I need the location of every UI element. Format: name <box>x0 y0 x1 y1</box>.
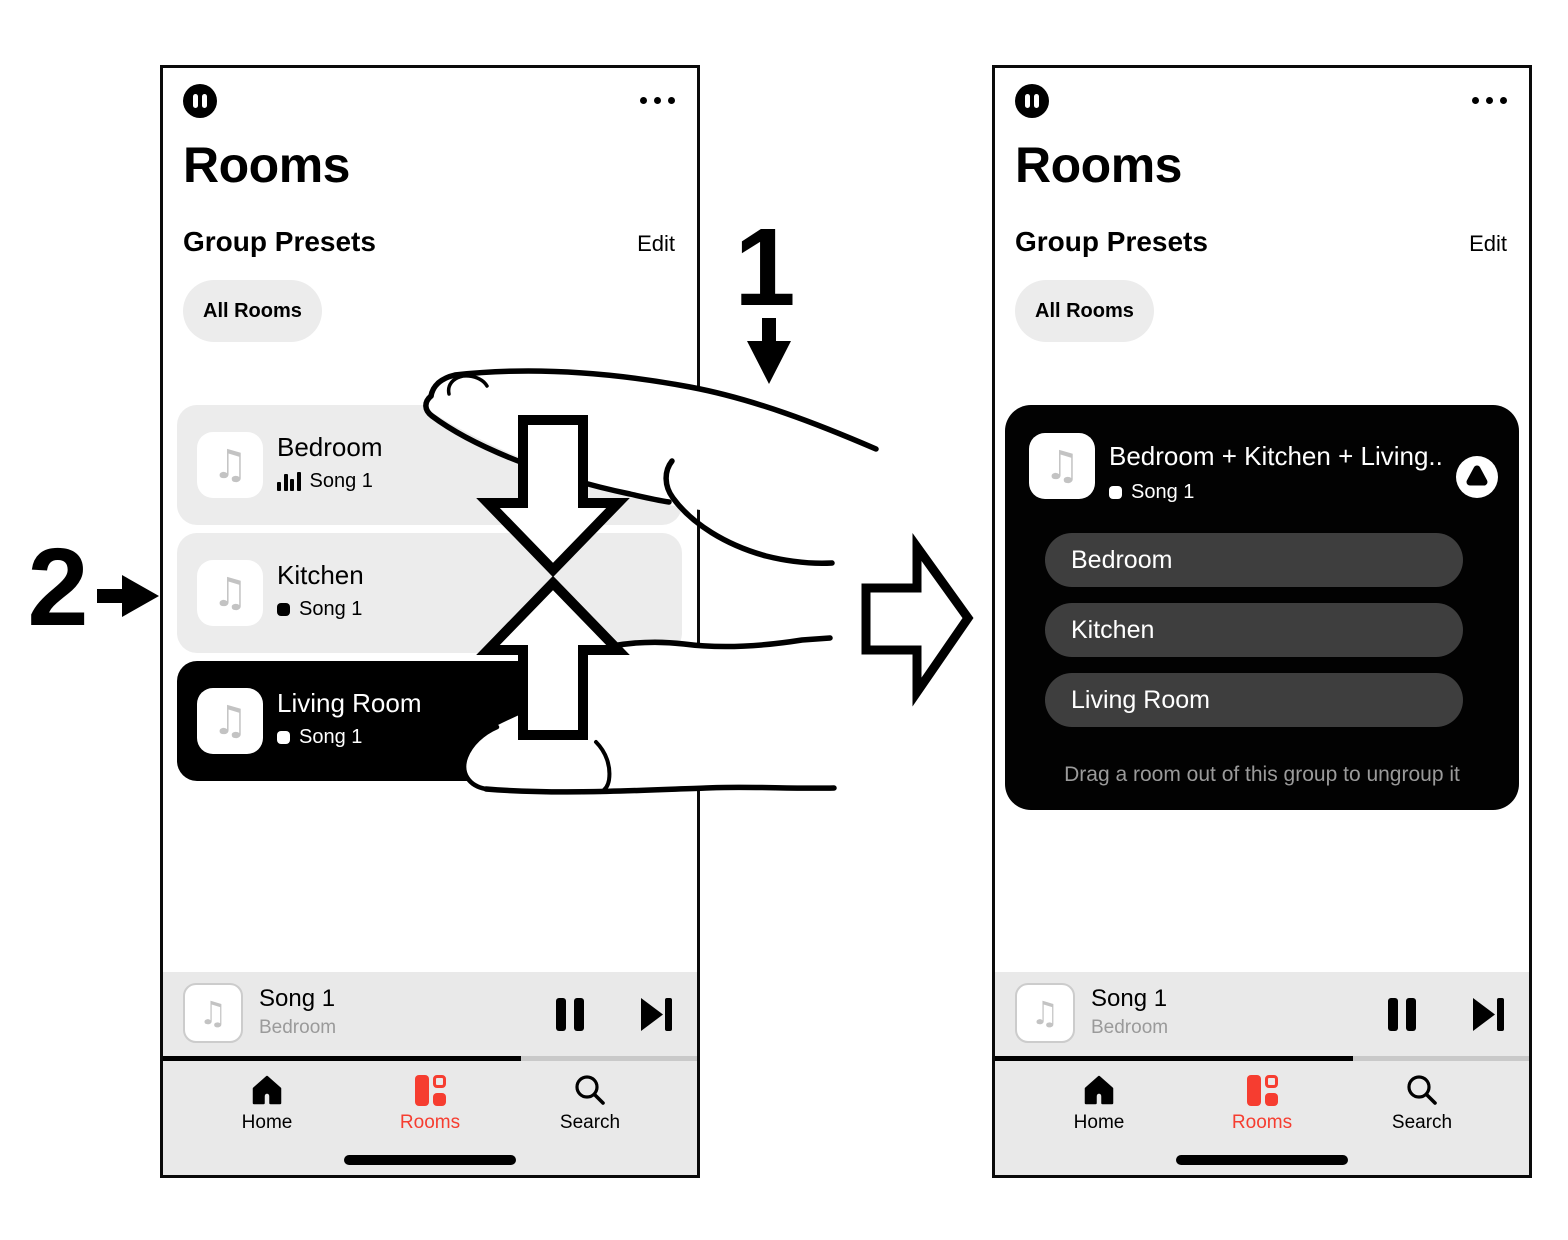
home-indicator[interactable] <box>1176 1155 1348 1165</box>
transition-arrow <box>866 547 968 692</box>
more-options-icon[interactable] <box>1472 97 1507 104</box>
player-room-name: Bedroom <box>1091 1017 1168 1039</box>
grouped-room-kitchen[interactable]: Kitchen <box>1045 603 1463 657</box>
search-icon <box>525 1071 655 1109</box>
edit-button[interactable]: Edit <box>1469 231 1507 257</box>
music-note-icon: ♫ <box>1044 446 1080 486</box>
nav-tab-home[interactable]: Home <box>1034 1071 1164 1134</box>
grouped-room-living-room[interactable]: Living Room <box>1045 673 1463 727</box>
player-song-title: Song 1 <box>259 985 335 1013</box>
rooms-grid-icon <box>365 1071 495 1109</box>
player-album-art: ♫ <box>183 983 243 1043</box>
ungroup-hint: Drag a room out of this group to ungroup… <box>1005 763 1519 787</box>
album-art: ♫ <box>197 688 263 754</box>
song-bullet-icon <box>277 603 290 616</box>
song-name: Song 1 <box>1131 481 1194 504</box>
player-pause-button[interactable] <box>1388 998 1416 1031</box>
tutorial-canvas: Rooms Group Presets Edit All Rooms ♫ Bed… <box>0 0 1568 1240</box>
song-name: Song 1 <box>299 726 362 749</box>
page-title: Rooms <box>1015 140 1182 190</box>
group-output-icon[interactable] <box>1455 455 1499 499</box>
song-name: Song 1 <box>310 470 373 493</box>
room-card-living-room[interactable]: ♫ Living Room Song 1 <box>177 661 682 781</box>
room-card-kitchen[interactable]: ♫ Kitchen Song 1 <box>177 533 682 653</box>
grouped-room-bedroom[interactable]: Bedroom <box>1045 533 1463 587</box>
preset-all-rooms-button[interactable]: All Rooms <box>183 280 322 342</box>
more-options-icon[interactable] <box>640 97 675 104</box>
nav-label: Home <box>202 1112 332 1134</box>
group-title: Bedroom + Kitchen + Living.. <box>1109 441 1443 472</box>
rooms-grid-icon <box>1197 1071 1327 1109</box>
room-name: Bedroom <box>277 432 383 463</box>
music-note-icon: ♫ <box>212 701 248 741</box>
nav-label: Home <box>1034 1112 1164 1134</box>
nav-label: Search <box>1357 1112 1487 1134</box>
preset-label: All Rooms <box>1035 300 1134 323</box>
song-bullet-icon <box>277 731 290 744</box>
pause-circle-icon[interactable] <box>183 84 217 118</box>
nav-tab-search[interactable]: Search <box>525 1071 655 1134</box>
pause-circle-icon[interactable] <box>1015 84 1049 118</box>
player-album-art: ♫ <box>1015 983 1075 1043</box>
player-next-button[interactable] <box>641 998 673 1031</box>
song-name: Song 1 <box>299 598 362 621</box>
preset-label: All Rooms <box>203 300 302 323</box>
mini-player[interactable]: ♫ Song 1 Bedroom <box>163 972 697 1056</box>
step-2-label: 2 <box>13 533 103 643</box>
album-art: ♫ <box>1029 433 1095 499</box>
section-title: Group Presets <box>1015 226 1208 258</box>
home-icon <box>1034 1071 1164 1109</box>
player-room-name: Bedroom <box>259 1017 336 1039</box>
room-card-bedroom[interactable]: ♫ Bedroom Song 1 <box>177 405 682 525</box>
room-name: Kitchen <box>277 560 364 591</box>
page-title: Rooms <box>183 140 350 190</box>
group-card[interactable]: ♫ Bedroom + Kitchen + Living.. Song 1 Be… <box>1005 405 1519 810</box>
music-note-icon: ♫ <box>1031 997 1060 1029</box>
nav-tab-rooms[interactable]: Rooms <box>1197 1071 1327 1134</box>
album-art: ♫ <box>197 432 263 498</box>
phone-screen-after: Rooms Group Presets Edit All Rooms ♫ Bed… <box>992 65 1532 1178</box>
mini-player[interactable]: ♫ Song 1 Bedroom <box>995 972 1529 1056</box>
player-song-title: Song 1 <box>1091 985 1167 1013</box>
step-2-arrow <box>97 575 159 617</box>
music-note-icon: ♫ <box>212 445 248 485</box>
phone-screen-before: Rooms Group Presets Edit All Rooms ♫ Bed… <box>160 65 700 1178</box>
room-name: Living Room <box>277 688 422 719</box>
equalizer-icon <box>277 472 301 491</box>
music-note-icon: ♫ <box>199 997 228 1029</box>
section-title: Group Presets <box>183 226 376 258</box>
nav-tab-rooms[interactable]: Rooms <box>365 1071 495 1134</box>
nav-label: Rooms <box>365 1112 495 1134</box>
player-next-button[interactable] <box>1473 998 1505 1031</box>
nav-tab-home[interactable]: Home <box>202 1071 332 1134</box>
nav-label: Search <box>525 1112 655 1134</box>
step-1-label: 1 <box>720 213 810 323</box>
bottom-nav: Home Rooms Search <box>995 1061 1529 1175</box>
home-indicator[interactable] <box>344 1155 516 1165</box>
album-art: ♫ <box>197 560 263 626</box>
search-icon <box>1357 1071 1487 1109</box>
music-note-icon: ♫ <box>212 573 248 613</box>
bottom-nav: Home Rooms Search <box>163 1061 697 1175</box>
nav-tab-search[interactable]: Search <box>1357 1071 1487 1134</box>
preset-all-rooms-button[interactable]: All Rooms <box>1015 280 1154 342</box>
edit-button[interactable]: Edit <box>637 231 675 257</box>
nav-label: Rooms <box>1197 1112 1327 1134</box>
home-icon <box>202 1071 332 1109</box>
song-bullet-icon <box>1109 486 1122 499</box>
player-pause-button[interactable] <box>556 998 584 1031</box>
